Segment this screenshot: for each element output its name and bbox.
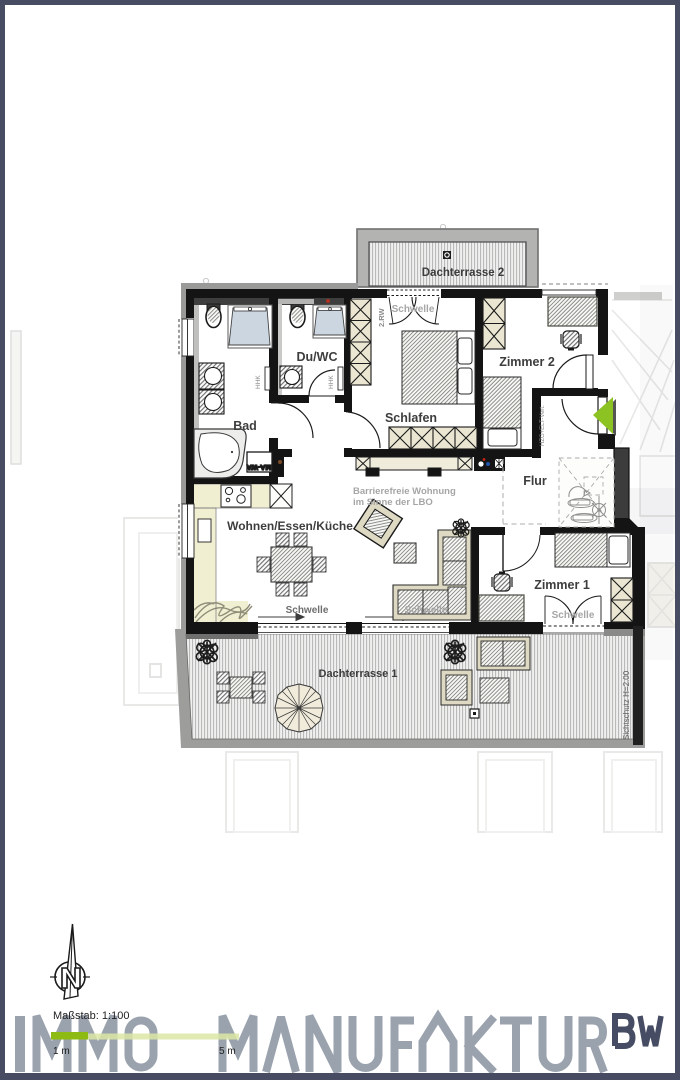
svg-text:Bad: Bad xyxy=(233,419,257,433)
svg-text:Schlafen: Schlafen xyxy=(385,411,437,425)
svg-text:MA-WA: MA-WA xyxy=(247,463,272,470)
svg-text:HHK: HHK xyxy=(255,375,262,389)
svg-text:Zimmer 1: Zimmer 1 xyxy=(534,578,590,592)
svg-text:HHK: HHK xyxy=(328,375,335,389)
svg-text:Dachterrasse 1: Dachterrasse 1 xyxy=(319,668,398,680)
svg-text:2.RW: 2.RW xyxy=(377,307,386,327)
svg-text:Schwelle: Schwelle xyxy=(286,605,329,616)
svg-text:5 m: 5 m xyxy=(219,1046,236,1057)
svg-text:Schwelle: Schwelle xyxy=(405,605,448,616)
svg-text:HZG+ELT-Vert.: HZG+ELT-Vert. xyxy=(540,405,546,446)
svg-text:Schwelle: Schwelle xyxy=(552,610,595,621)
svg-text:Dachterrasse 2: Dachterrasse 2 xyxy=(422,267,504,279)
svg-text:Flur: Flur xyxy=(523,474,547,488)
svg-text:Barrierefreie Wohnung: Barrierefreie Wohnung xyxy=(353,486,456,497)
svg-text:Maßstab: 1:100: Maßstab: 1:100 xyxy=(53,1010,129,1022)
svg-text:Zimmer 2: Zimmer 2 xyxy=(499,355,555,369)
svg-text:Wohnen/Essen/Küche: Wohnen/Essen/Küche xyxy=(227,519,353,533)
svg-text:1 m: 1 m xyxy=(53,1046,70,1057)
svg-text:Schwelle: Schwelle xyxy=(392,304,435,315)
svg-text:Sichtschutz H=2.00: Sichtschutz H=2.00 xyxy=(622,670,631,740)
svg-text:Du/WC: Du/WC xyxy=(297,350,338,364)
svg-text:im Sinne der LBO: im Sinne der LBO xyxy=(353,497,433,508)
